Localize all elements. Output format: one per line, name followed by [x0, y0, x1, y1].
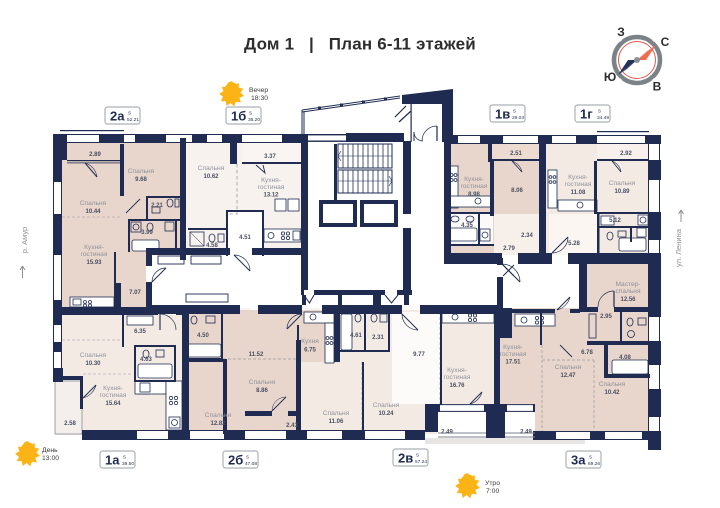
svg-text:Спальня: Спальня: [80, 200, 107, 207]
svg-text:5.28: 5.28: [568, 241, 580, 247]
svg-text:10.24: 10.24: [378, 411, 394, 417]
svg-text:29.03: 29.03: [512, 115, 524, 121]
svg-text:12.82: 12.82: [210, 421, 226, 427]
svg-text:4.50: 4.50: [197, 333, 209, 339]
svg-text:S: S: [249, 111, 252, 116]
svg-text:Утро: Утро: [485, 480, 500, 487]
svg-text:гостиная: гостиная: [461, 183, 488, 190]
svg-text:13:00: 13:00: [42, 455, 59, 462]
svg-text:гостиная: гостиная: [258, 184, 285, 191]
svg-text:39.50: 39.50: [122, 461, 134, 467]
svg-text:Спальня: Спальня: [555, 364, 582, 371]
svg-text:спальня: спальня: [615, 288, 640, 295]
svg-text:S: S: [128, 111, 131, 116]
svg-text:8.06: 8.06: [511, 188, 523, 194]
svg-text:1а: 1а: [105, 453, 120, 468]
svg-text:гостиная: гостиная: [81, 251, 108, 258]
svg-text:Ю: Ю: [604, 70, 616, 84]
svg-text:13.12: 13.12: [263, 193, 279, 199]
svg-text:3а: 3а: [571, 453, 586, 468]
svg-text:Кухня-: Кухня-: [503, 344, 523, 351]
svg-text:S: S: [589, 455, 592, 460]
svg-text:гостиная: гостиная: [444, 374, 471, 381]
svg-text:Дом 1 | План 6-11 этажей: Дом 1 | План 6-11 этажей: [244, 35, 476, 54]
svg-text:2.49: 2.49: [520, 430, 532, 436]
svg-text:10.42: 10.42: [604, 390, 620, 396]
svg-text:2.51: 2.51: [510, 151, 522, 157]
svg-text:8.98: 8.98: [468, 192, 480, 198]
svg-text:Спальня: Спальня: [373, 402, 400, 409]
svg-text:1в: 1в: [495, 107, 510, 122]
svg-text:2.92: 2.92: [620, 151, 632, 157]
svg-text:11.52: 11.52: [249, 352, 264, 358]
svg-text:11.08: 11.08: [571, 190, 586, 196]
svg-text:4.61: 4.61: [350, 333, 362, 339]
svg-text:36.20: 36.20: [248, 117, 260, 123]
svg-text:2.89: 2.89: [89, 152, 101, 158]
svg-text:гостиная: гостиная: [565, 181, 592, 188]
svg-text:4.58: 4.58: [206, 243, 218, 249]
svg-text:Вечер: Вечер: [249, 87, 268, 94]
svg-text:2.79: 2.79: [503, 246, 515, 252]
svg-text:10.44: 10.44: [85, 209, 101, 215]
svg-text:4.08: 4.08: [619, 355, 631, 361]
svg-text:57.24: 57.24: [415, 459, 427, 465]
svg-text:гостиная: гостиная: [100, 392, 127, 399]
svg-text:S: S: [246, 455, 249, 460]
svg-text:18:30: 18:30: [251, 95, 268, 102]
svg-text:2.21: 2.21: [151, 203, 163, 209]
svg-text:Спальня: Спальня: [609, 180, 636, 187]
svg-text:2.58: 2.58: [64, 421, 76, 427]
svg-text:34.49: 34.49: [597, 115, 609, 121]
svg-text:6.78: 6.78: [581, 350, 593, 356]
svg-text:7:00: 7:00: [486, 488, 499, 495]
svg-text:Кухня-: Кухня-: [447, 367, 467, 374]
svg-text:4.51: 4.51: [239, 235, 251, 241]
svg-text:52.21: 52.21: [127, 117, 139, 123]
svg-text:17.51: 17.51: [505, 360, 521, 366]
svg-text:12.56: 12.56: [620, 297, 636, 303]
svg-text:В: В: [653, 80, 662, 94]
svg-text:3.99: 3.99: [141, 230, 153, 236]
svg-text:9.77: 9.77: [413, 352, 425, 358]
svg-text:S: S: [416, 453, 419, 458]
svg-text:З: З: [617, 25, 625, 39]
svg-text:Спальня: Спальня: [249, 379, 276, 386]
svg-text:Спальня: Спальня: [323, 410, 350, 417]
svg-text:1г: 1г: [580, 107, 593, 122]
svg-text:2.43: 2.43: [286, 423, 298, 429]
svg-text:2.95: 2.95: [600, 314, 612, 320]
svg-text:День: День: [42, 447, 58, 454]
svg-text:Мастер-: Мастер-: [615, 281, 640, 288]
svg-text:10.30: 10.30: [85, 361, 101, 367]
svg-text:5.12: 5.12: [609, 218, 621, 224]
svg-text:Спальня: Спальня: [198, 165, 225, 172]
svg-text:Спальня: Спальня: [599, 381, 626, 388]
svg-text:7.07: 7.07: [129, 290, 141, 296]
svg-text:15.93: 15.93: [86, 260, 102, 266]
svg-text:47.08: 47.08: [245, 461, 257, 467]
svg-text:Спальня: Спальня: [128, 168, 155, 175]
svg-text:2.49: 2.49: [441, 430, 453, 436]
svg-text:10.62: 10.62: [203, 174, 219, 180]
svg-text:гостиная: гостиная: [500, 351, 527, 358]
svg-text:С: С: [661, 35, 670, 49]
svg-text:3.37: 3.37: [264, 154, 276, 160]
svg-text:9.68: 9.68: [135, 177, 147, 183]
svg-text:Спальня: Спальня: [80, 352, 107, 359]
svg-text:1б: 1б: [231, 109, 246, 124]
svg-text:2в: 2в: [398, 451, 413, 466]
svg-text:Кухня-: Кухня-: [464, 176, 484, 183]
svg-text:15.64: 15.64: [105, 401, 121, 407]
svg-text:Кухня-: Кухня-: [568, 174, 588, 181]
svg-text:16.76: 16.76: [449, 383, 465, 389]
svg-text:2а: 2а: [110, 109, 125, 124]
svg-text:S: S: [513, 109, 516, 114]
svg-text:Спальня: Спальня: [205, 412, 232, 419]
svg-text:Кухня-: Кухня-: [84, 244, 104, 251]
svg-text:Кухня-: Кухня-: [261, 177, 281, 184]
svg-text:69.26: 69.26: [588, 461, 600, 467]
svg-text:S: S: [123, 455, 126, 460]
svg-text:Кухня: Кухня: [301, 338, 319, 345]
svg-text:6.35: 6.35: [134, 329, 146, 335]
svg-text:8.86: 8.86: [256, 388, 268, 394]
svg-text:6.75: 6.75: [304, 348, 316, 354]
svg-text:S: S: [598, 109, 601, 114]
svg-text:ул. Ленина: ул. Ленина: [674, 228, 683, 267]
svg-text:р. Амур: р. Амур: [20, 227, 29, 253]
svg-text:11.06: 11.06: [329, 419, 344, 425]
svg-text:2.31: 2.31: [372, 335, 384, 341]
svg-text:12.47: 12.47: [560, 373, 576, 379]
svg-text:2б: 2б: [228, 453, 243, 468]
svg-text:Кухня-: Кухня-: [103, 385, 123, 392]
svg-text:4.35: 4.35: [461, 223, 473, 229]
svg-text:2.34: 2.34: [521, 233, 533, 239]
svg-text:10.89: 10.89: [614, 189, 630, 195]
svg-text:4.63: 4.63: [140, 357, 152, 363]
